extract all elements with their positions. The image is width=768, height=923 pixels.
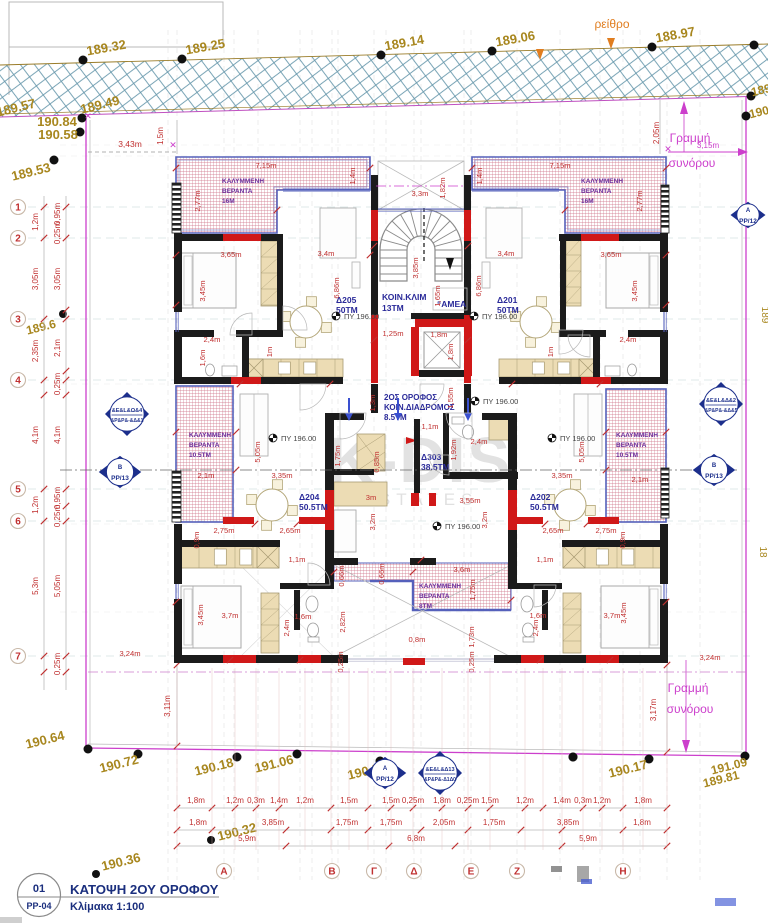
svg-text:2ΟΣ ΟΡΟΦΟΣ: 2ΟΣ ΟΡΟΦΟΣ — [384, 393, 437, 402]
svg-text:01: 01 — [33, 883, 45, 895]
svg-text:5,3m: 5,3m — [31, 577, 40, 595]
svg-text:38.5ΤΜ: 38.5ΤΜ — [421, 462, 450, 472]
svg-text:2,1m: 2,1m — [53, 339, 62, 357]
svg-text:2,4m: 2,4m — [282, 620, 291, 637]
svg-text:3,45m: 3,45m — [619, 602, 628, 623]
svg-text:7,15m: 7,15m — [255, 161, 276, 170]
svg-text:ΚΑΛΥΜΜΕΝΗ: ΚΑΛΥΜΜΕΝΗ — [581, 178, 623, 185]
svg-text:2: 2 — [15, 234, 21, 245]
svg-text:0,9m: 0,9m — [618, 532, 627, 549]
svg-text:Η: Η — [619, 867, 626, 878]
svg-text:ΚΑΛΥΜΜΕΝΗ: ΚΑΛΥΜΜΕΝΗ — [419, 583, 461, 590]
svg-text:1,1m: 1,1m — [289, 555, 306, 564]
svg-text:3,7m: 3,7m — [222, 611, 239, 620]
svg-text:&E&L&Δ&2: &E&L&Δ&2 — [706, 398, 736, 404]
svg-text:&E&L&Ω&4: &E&L&Ω&4 — [112, 408, 143, 414]
svg-text:1: 1 — [15, 203, 21, 214]
svg-text:3,45m: 3,45m — [198, 280, 207, 301]
svg-text:2,4m: 2,4m — [204, 335, 221, 344]
svg-text:1,1m: 1,1m — [537, 555, 554, 564]
svg-text:3,7m: 3,7m — [604, 611, 621, 620]
svg-text:1m: 1m — [546, 347, 555, 358]
svg-text:1,6m: 1,6m — [530, 611, 547, 620]
svg-text:8ΤΜ: 8ΤΜ — [419, 603, 432, 610]
svg-text:ΠΥ 196.00: ΠΥ 196.00 — [483, 397, 518, 406]
svg-text:6: 6 — [15, 517, 21, 528]
svg-text:6,8m: 6,8m — [407, 834, 425, 843]
svg-text:ΒΕΡΑΝΤΑ: ΒΕΡΑΝΤΑ — [581, 188, 612, 195]
svg-text:3,2m: 3,2m — [368, 514, 377, 531]
svg-text:1,75m: 1,75m — [333, 445, 342, 466]
svg-text:Δ: Δ — [410, 867, 417, 878]
svg-text:0,9m: 0,9m — [192, 532, 201, 549]
svg-text:2,75m: 2,75m — [595, 526, 616, 535]
svg-text:PP/12: PP/12 — [739, 218, 757, 225]
svg-text:3,05m: 3,05m — [31, 268, 40, 291]
svg-text:3,4m: 3,4m — [318, 249, 335, 258]
svg-text:3: 3 — [15, 315, 21, 326]
svg-text:1,8m: 1,8m — [431, 330, 448, 339]
svg-text:0,25m: 0,25m — [467, 651, 476, 672]
svg-text:4,1m: 4,1m — [31, 426, 40, 444]
svg-text:1,8m: 1,8m — [446, 344, 455, 361]
svg-text:0,25m: 0,25m — [53, 505, 62, 528]
svg-text:1,75m: 1,75m — [483, 818, 506, 827]
svg-text:3,35m: 3,35m — [271, 471, 292, 480]
svg-text:Δ204: Δ204 — [299, 492, 320, 502]
svg-text:ΒΕΡΑΝΤΑ: ΒΕΡΑΝΤΑ — [222, 188, 253, 195]
svg-text:&P&P&-&Δ&1: &P&P&-&Δ&1 — [111, 418, 144, 424]
svg-text:50.5ΤΜ: 50.5ΤΜ — [530, 502, 559, 512]
svg-text:Δ303: Δ303 — [421, 452, 442, 462]
svg-text:ΠΥ 196.00: ΠΥ 196.00 — [344, 312, 379, 321]
svg-text:5,05m: 5,05m — [53, 575, 62, 598]
svg-text:1,1m: 1,1m — [422, 422, 439, 431]
svg-text:B: B — [712, 463, 717, 469]
svg-text:16Μ: 16Μ — [581, 198, 594, 205]
svg-text:0,25m: 0,25m — [53, 222, 62, 245]
svg-text:✕: ✕ — [664, 144, 672, 154]
svg-text:B: B — [118, 465, 123, 471]
svg-text:1m: 1m — [265, 347, 274, 358]
svg-text:Κλίμακα 1:100: Κλίμακα 1:100 — [70, 901, 144, 913]
svg-text:1,73m: 1,73m — [467, 626, 476, 647]
svg-text:&E&L&Δ13: &E&L&Δ13 — [425, 767, 454, 773]
svg-text:ΒΕΡΑΝΤΑ: ΒΕΡΑΝΤΑ — [189, 442, 220, 449]
svg-text:PP/13: PP/13 — [111, 475, 129, 482]
svg-text:1,3m: 1,3m — [368, 395, 377, 412]
svg-text:1,75m: 1,75m — [336, 818, 359, 827]
svg-text:1,2m: 1,2m — [31, 496, 40, 514]
svg-text:4: 4 — [15, 376, 21, 387]
svg-text:5,9m: 5,9m — [579, 834, 597, 843]
svg-text:PP/12: PP/12 — [376, 776, 394, 783]
svg-text:Α: Α — [220, 867, 227, 878]
svg-text:6,86m: 6,86m — [332, 277, 341, 298]
svg-text:10.5ΤΜ: 10.5ΤΜ — [189, 452, 211, 459]
svg-text:1,2m: 1,2m — [31, 213, 40, 231]
svg-text:5: 5 — [15, 485, 21, 496]
svg-text:10.5ΤΜ: 10.5ΤΜ — [616, 452, 638, 459]
svg-text:2,35m: 2,35m — [31, 340, 40, 363]
svg-text:Γραμμή: Γραμμή — [668, 681, 709, 695]
svg-text:ρείθρο: ρείθρο — [594, 17, 629, 31]
svg-text:3,05m: 3,05m — [53, 268, 62, 291]
svg-text:5,9m: 5,9m — [238, 834, 256, 843]
svg-text:✕: ✕ — [84, 111, 92, 121]
svg-text:PP/13: PP/13 — [705, 473, 723, 480]
svg-text:0,25m: 0,25m — [53, 373, 62, 396]
svg-text:0,66m: 0,66m — [377, 563, 386, 584]
svg-text:1,8m: 1,8m — [187, 796, 205, 805]
svg-text:ΚΑΛΥΜΜΕΝΗ: ΚΑΛΥΜΜΕΝΗ — [616, 432, 658, 439]
svg-text:3,43m: 3,43m — [118, 139, 142, 149]
svg-text:3,4m: 3,4m — [498, 249, 515, 258]
svg-text:1,5m: 1,5m — [156, 127, 165, 145]
svg-text:4,1m: 4,1m — [53, 426, 62, 444]
svg-text:1,8m: 1,8m — [633, 818, 651, 827]
svg-text:1,82m: 1,82m — [438, 177, 447, 198]
svg-text:0,66m: 0,66m — [337, 565, 346, 586]
svg-text:Γ: Γ — [371, 867, 377, 878]
svg-text:1,8m: 1,8m — [189, 818, 207, 827]
svg-text:3,45m: 3,45m — [630, 280, 639, 301]
svg-text:PP-04: PP-04 — [26, 901, 51, 911]
svg-text:2,75m: 2,75m — [213, 526, 234, 535]
svg-text:3,17m: 3,17m — [649, 699, 658, 722]
svg-text:2,05m: 2,05m — [433, 818, 456, 827]
svg-text:συνόρου: συνόρου — [667, 702, 714, 716]
svg-text:2,77m: 2,77m — [193, 190, 202, 211]
svg-text:13ΤΜ: 13ΤΜ — [382, 303, 404, 313]
svg-text:6,86m: 6,86m — [474, 275, 483, 296]
svg-text:1,55m: 1,55m — [446, 387, 455, 408]
svg-text:ΚΑΛΥΜΜΕΝΗ: ΚΑΛΥΜΜΕΝΗ — [222, 178, 264, 185]
svg-text:2,1m: 2,1m — [198, 471, 215, 480]
svg-text:7,15m: 7,15m — [549, 161, 570, 170]
svg-text:2,82m: 2,82m — [338, 611, 347, 632]
svg-text:3,6m: 3,6m — [454, 565, 471, 574]
svg-text:0,8m: 0,8m — [409, 635, 426, 644]
svg-text:2,65m: 2,65m — [279, 526, 300, 535]
svg-text:3,85m: 3,85m — [557, 818, 580, 827]
svg-text:3,11m: 3,11m — [163, 695, 172, 717]
svg-text:ΒΕΡΑΝΤΑ: ΒΕΡΑΝΤΑ — [616, 442, 647, 449]
svg-text:3,3m: 3,3m — [412, 189, 429, 198]
svg-text:2,77m: 2,77m — [635, 190, 644, 211]
svg-text:16Μ: 16Μ — [222, 198, 235, 205]
svg-text:3,2m: 3,2m — [480, 512, 489, 529]
svg-text:0,85m: 0,85m — [372, 451, 381, 472]
svg-text:ΒΕΡΑΝΤΑ: ΒΕΡΑΝΤΑ — [419, 593, 450, 600]
svg-text:1,65m: 1,65m — [433, 285, 442, 306]
svg-text:3,24m: 3,24m — [699, 653, 720, 662]
svg-text:3,24m: 3,24m — [119, 649, 140, 658]
svg-text:1,75m: 1,75m — [468, 579, 477, 600]
svg-text:ΚΑΤΟΨΗ 2ΟΥ ΟΡΟΦΟΥ: ΚΑΤΟΨΗ 2ΟΥ ΟΡΟΦΟΥ — [70, 882, 219, 897]
svg-text:7: 7 — [15, 652, 21, 663]
svg-text:1,25m: 1,25m — [382, 329, 403, 338]
svg-text:✕: ✕ — [169, 140, 177, 150]
svg-text:2,4m: 2,4m — [531, 620, 540, 637]
svg-text:ΚΟΙΝ.ΚΛΙΜ: ΚΟΙΝ.ΚΛΙΜ — [382, 292, 426, 302]
svg-text:2,65m: 2,65m — [542, 526, 563, 535]
svg-text:50.5ΤΜ: 50.5ΤΜ — [299, 502, 328, 512]
svg-text:1,92m: 1,92m — [449, 439, 458, 460]
svg-text:0,95m: 0,95m — [53, 203, 62, 226]
svg-text:Z: Z — [514, 867, 520, 878]
svg-text:ΠΥ 196.00: ΠΥ 196.00 — [445, 522, 480, 531]
svg-text:3m: 3m — [366, 493, 377, 502]
svg-text:0,25m: 0,25m — [336, 651, 345, 672]
svg-text:5,05m: 5,05m — [253, 441, 262, 462]
svg-text:1,4m: 1,4m — [348, 168, 357, 185]
svg-text:ΚΟΙΝ.ΔΙΑΔΡΟΜΟΣ: ΚΟΙΝ.ΔΙΑΔΡΟΜΟΣ — [384, 403, 455, 412]
svg-text:2,4m: 2,4m — [620, 335, 637, 344]
svg-text:3,35m: 3,35m — [551, 471, 572, 480]
svg-text:0,25m: 0,25m — [53, 653, 62, 676]
svg-text:&P&P&-&Δ&5: &P&P&-&Δ&5 — [705, 408, 738, 414]
svg-text:A: A — [383, 766, 388, 772]
svg-text:ΚΑΛΥΜΜΕΝΗ: ΚΑΛΥΜΜΕΝΗ — [189, 432, 231, 439]
svg-text:3,65m: 3,65m — [220, 250, 241, 259]
svg-text:1,6m: 1,6m — [198, 350, 207, 367]
svg-text:ΠΥ 196.00: ΠΥ 196.00 — [482, 312, 517, 321]
svg-text:3,55m: 3,55m — [459, 496, 480, 505]
svg-text:3,15m: 3,15m — [697, 141, 720, 150]
svg-text:A: A — [746, 208, 751, 214]
svg-text:Ε: Ε — [468, 867, 475, 878]
svg-text:2,1m: 2,1m — [632, 475, 649, 484]
svg-text:3,45m: 3,45m — [196, 604, 205, 625]
svg-text:5,05m: 5,05m — [577, 441, 586, 462]
svg-text:ΠΥ 196.00: ΠΥ 196.00 — [281, 434, 316, 443]
svg-text:189: 189 — [759, 307, 768, 324]
svg-text:1,6m: 1,6m — [295, 612, 312, 621]
svg-text:3,85m: 3,85m — [411, 257, 420, 278]
svg-text:Δ202: Δ202 — [530, 492, 551, 502]
svg-text:Β: Β — [328, 867, 335, 878]
svg-text:συνόρου: συνόρου — [669, 156, 716, 170]
svg-text:3,65m: 3,65m — [600, 250, 621, 259]
svg-text:1,4m: 1,4m — [475, 168, 484, 185]
svg-text:190.58: 190.58 — [38, 127, 78, 142]
svg-text:18: 18 — [757, 546, 768, 558]
svg-text:&P&P&-Δ1Δ0: &P&P&-Δ1Δ0 — [424, 777, 456, 783]
svg-text:3,85m: 3,85m — [262, 818, 285, 827]
svg-text:2,4m: 2,4m — [471, 437, 488, 446]
svg-text:Δ201: Δ201 — [497, 295, 518, 305]
